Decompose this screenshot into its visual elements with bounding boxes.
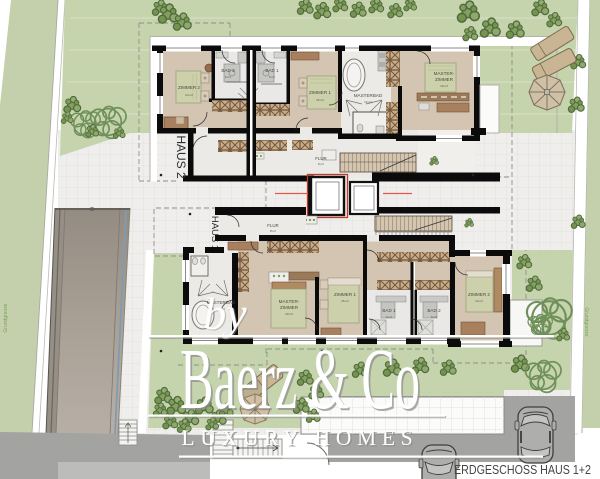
svg-text:FLUR: FLUR — [267, 223, 278, 228]
svg-text:Grundgrenze: Grundgrenze — [3, 303, 9, 332]
svg-text:ZIMMER: ZIMMER — [435, 77, 454, 82]
svg-text:15 m²: 15 m² — [316, 98, 324, 102]
svg-text:ZIMMER: ZIMMER — [280, 305, 299, 310]
svg-text:ZIMMER 1: ZIMMER 1 — [309, 90, 331, 95]
svg-text:6 m²: 6 m² — [386, 315, 392, 319]
svg-text:FLUR: FLUR — [315, 156, 326, 161]
svg-text:ERDGESCHOSS HAUS 1+2: ERDGESCHOSS HAUS 1+2 — [454, 462, 591, 477]
svg-text:15 m²: 15 m² — [341, 299, 349, 303]
svg-text:6 m²: 6 m² — [269, 75, 275, 79]
svg-text:14 m²: 14 m² — [185, 93, 193, 97]
svg-text:HAUS 2: HAUS 2 — [174, 135, 188, 179]
svg-text:8 m²: 8 m² — [270, 229, 276, 233]
svg-text:MASTER-: MASTER- — [279, 299, 300, 304]
svg-text:HAUS 1: HAUS 1 — [209, 216, 220, 250]
svg-text:19 m²: 19 m² — [285, 312, 293, 316]
svg-text:MASTER-: MASTER- — [434, 71, 455, 76]
svg-text:LUXURY HOMES: LUXURY HOMES — [182, 425, 419, 450]
svg-text:Baerz & Co: Baerz & Co — [180, 330, 420, 427]
svg-text:MASTERBAD: MASTERBAD — [354, 93, 383, 98]
svg-text:Grundgrenze: Grundgrenze — [583, 307, 589, 336]
svg-text:ZIMMER 1: ZIMMER 1 — [334, 292, 356, 297]
svg-text:19 m²: 19 m² — [440, 84, 448, 88]
svg-text:ZIMMER 2: ZIMMER 2 — [178, 85, 200, 90]
svg-text:6 m²: 6 m² — [225, 75, 231, 79]
svg-text:ZIMMER 2: ZIMMER 2 — [468, 292, 490, 297]
svg-text:BAD 2: BAD 2 — [427, 308, 441, 313]
svg-text:6 m²: 6 m² — [431, 315, 437, 319]
svg-text:BAD 1: BAD 1 — [265, 68, 279, 73]
svg-text:BAD 1: BAD 1 — [382, 308, 396, 313]
svg-text:9 m²: 9 m² — [318, 162, 324, 166]
svg-text:12 m²: 12 m² — [364, 100, 372, 104]
svg-text:BAD 2: BAD 2 — [221, 68, 235, 73]
svg-text:14 m²: 14 m² — [475, 299, 483, 303]
